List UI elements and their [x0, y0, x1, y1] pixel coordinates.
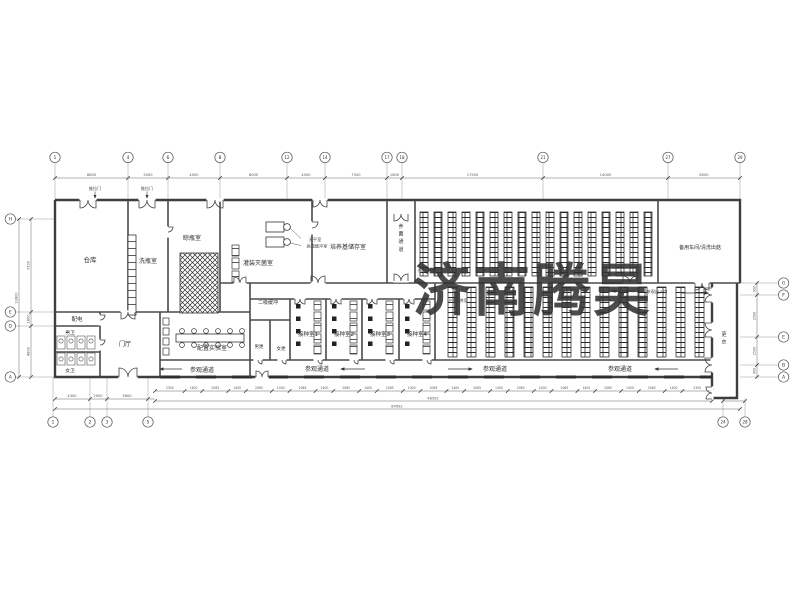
autoclave-door	[284, 239, 291, 246]
dimension-text: 2065	[255, 386, 263, 390]
lab-stool	[216, 329, 221, 334]
room-label-womens-changing: 女更	[277, 345, 286, 352]
door	[705, 322, 714, 337]
dimension-text: 900	[752, 286, 756, 292]
dimension-text: 17500	[467, 173, 479, 177]
dimension-text: 2065	[561, 386, 569, 390]
grid-bubble-label: 12	[284, 155, 290, 160]
door	[79, 198, 96, 208]
dimension-text: 1400	[451, 386, 459, 390]
room-label-inoculation-3: 接种室3	[370, 330, 391, 338]
dimension-text: 900	[752, 368, 756, 374]
floor-plan-page: 14681214171821272912352428HEDAGFEBA 8800…	[0, 0, 800, 600]
dimension-text: 4500	[301, 173, 311, 177]
lab-cabinet	[163, 348, 169, 355]
door	[366, 297, 377, 304]
lab-cabinet	[163, 328, 169, 335]
grid-bubble-label: 29	[737, 155, 743, 160]
dimension-text: 2065	[604, 386, 612, 390]
room-label-changing: 更衣	[721, 332, 726, 346]
room-label-mens-wc: 男卫	[65, 330, 75, 336]
clean-bench	[368, 317, 373, 322]
equipment-layer	[57, 222, 430, 365]
leader-line	[290, 228, 301, 239]
sterilizer-rack	[232, 245, 239, 256]
culture-rack	[695, 287, 704, 357]
room-label-mens-changing: 男更	[255, 344, 264, 350]
dimension-text: 1400	[233, 386, 241, 390]
room-label-spare-workshop: 备用车间/清洗出菇	[679, 244, 721, 251]
dimension-text: 2065	[648, 386, 656, 390]
dimension-text: 14000	[600, 173, 612, 177]
grid-bubble-label: 4	[127, 155, 130, 161]
grid-bubble-label: G	[782, 281, 786, 287]
annotation-balance-room: 天平室	[309, 236, 322, 243]
door	[330, 297, 341, 304]
lab-stool	[192, 329, 197, 334]
dimension-text: 2350	[166, 386, 174, 390]
clean-bench	[296, 304, 301, 309]
annotation-high-temp-buffer: 高温缓冲室	[307, 243, 328, 250]
room-label-bottle-drying: 晾瓶室	[183, 234, 201, 242]
clean-bench	[405, 304, 410, 309]
door	[422, 358, 431, 364]
dimension-text: 1400	[670, 386, 678, 390]
grid-bubble-label: 18	[399, 155, 405, 160]
lab-cabinet	[163, 318, 169, 325]
annotation-sliding-door-2: 推拉门	[141, 185, 153, 191]
door	[253, 358, 262, 364]
clean-bench	[405, 342, 410, 347]
door	[310, 221, 318, 234]
dimension-text: 2350	[693, 386, 701, 390]
lab-stool	[228, 329, 233, 334]
grid-bubble-label: D	[9, 324, 13, 330]
dimension-text: 7200	[26, 260, 30, 270]
dimension-text: 84592	[391, 404, 402, 408]
door	[385, 358, 394, 364]
door	[138, 198, 155, 208]
room-label-filling-sterilizing: 灌装灭菌室	[243, 259, 273, 267]
grid-bubble-label: E	[9, 310, 12, 316]
laminar-cabinet	[386, 312, 393, 321]
dimension-text: 1400	[189, 386, 197, 390]
door	[294, 297, 305, 304]
grid-bubble-label: 28	[742, 420, 748, 425]
dimension-text: 1800	[26, 314, 30, 324]
room-label-inoculation-4: 接种室4	[407, 330, 428, 338]
door	[166, 226, 173, 237]
dimension-text: 13800	[14, 292, 18, 304]
door	[312, 198, 327, 207]
grid-bubble-label: 5	[147, 420, 150, 426]
door	[98, 314, 105, 325]
dimension-text: 5600	[122, 394, 132, 398]
sterilizer-rack	[232, 271, 239, 282]
lab-stool	[228, 343, 233, 348]
room-label-inoculation-2: 接种室2	[334, 330, 354, 338]
annotation-sliding-door-1: 推拉门	[89, 185, 101, 191]
wc-fixture	[69, 357, 73, 361]
grid-bubble-label: 3	[106, 420, 109, 426]
sterilizer-rack	[232, 258, 239, 269]
laminar-cabinet	[314, 323, 321, 332]
dimension-text: 1400	[539, 386, 547, 390]
dimension-text: 1400	[320, 386, 328, 390]
clean-bench	[332, 317, 337, 322]
lab-stool	[192, 343, 197, 348]
dimension-text: 2065	[211, 386, 219, 390]
shelf-rack	[128, 235, 136, 315]
dimension-text: 1800	[390, 173, 400, 177]
lab-cabinet	[163, 338, 169, 345]
laminar-cabinet	[350, 323, 357, 332]
dimension-text: 2065	[299, 386, 307, 390]
door	[393, 212, 408, 221]
wc-fixture	[59, 357, 63, 361]
dimension-text: 2065	[386, 386, 394, 390]
door	[206, 198, 223, 208]
clean-bench	[296, 342, 301, 347]
dimension-text: 8000	[699, 173, 709, 177]
wc-fixture	[89, 357, 93, 361]
grid-bubble-label: 6	[167, 155, 170, 161]
door	[313, 358, 322, 364]
lab-stool	[240, 343, 245, 348]
laminar-cabinet	[350, 312, 357, 321]
laminar-cabinet	[423, 323, 430, 332]
grid-bubble-label: 27	[665, 155, 671, 160]
wc-fixture	[79, 339, 83, 343]
lab-stool	[240, 329, 245, 334]
corridor-label-visit-3: 参观通道	[483, 365, 507, 373]
room-label-inoculation-1: 接种室1	[298, 330, 318, 338]
room-label-prep-lab: 配置实验室	[197, 344, 227, 352]
room-label-secondary-buffer: 二级缓冲	[258, 299, 278, 306]
grid-bubble-label: 24	[720, 420, 726, 425]
dimension-text: 1400	[277, 386, 285, 390]
laminar-cabinet	[350, 301, 357, 310]
room-label-power: 配电	[71, 315, 83, 323]
laminar-cabinet	[314, 345, 321, 354]
autoclave	[266, 222, 284, 232]
laminar-cabinet	[314, 301, 321, 310]
dimension-text: 2500	[752, 312, 756, 320]
room-label-warehouse: 仓库	[84, 255, 98, 264]
dimension-text: 8800	[87, 173, 97, 177]
clean-bench	[296, 317, 301, 322]
grid-bubble-label: F	[782, 293, 785, 299]
culture-rack	[657, 287, 666, 357]
dimension-text: 2000	[93, 394, 103, 398]
grid-bubble-label: B	[782, 363, 785, 369]
dimension-text: 4800	[26, 346, 30, 356]
dimension-text: 5000	[143, 173, 153, 177]
door	[706, 386, 714, 399]
clean-bench	[332, 342, 337, 347]
lab-stool	[180, 329, 185, 334]
room-label-foyer: 门厅	[119, 340, 131, 348]
room-label-incubation-corridor: 养菌通道	[398, 223, 403, 253]
autoclave	[266, 237, 284, 247]
door	[255, 371, 268, 379]
clean-bench	[405, 317, 410, 322]
door	[118, 368, 137, 379]
dimension-text: 1400	[626, 386, 634, 390]
grid-bubble-label: 1	[54, 155, 57, 161]
autoclave-door	[284, 224, 291, 231]
corridor-label-visit-4: 参观通道	[608, 365, 632, 373]
wc-fixture	[89, 339, 93, 343]
room-label-medium-storage: 培养基储存室	[330, 243, 366, 251]
dimension-text: 2065	[473, 386, 481, 390]
grid-bubble-label: E	[782, 335, 785, 341]
dimension-text: 4000	[189, 173, 199, 177]
grid-bubble-label: 21	[540, 155, 546, 160]
bottle-stack-hatch	[180, 253, 218, 313]
floor-plan-canvas: 14681214171821272912352428HEDAGFEBA 8800…	[0, 0, 800, 600]
dimension-text: 2065	[517, 386, 525, 390]
clean-bench	[332, 304, 337, 309]
grid-bubble-label: 14	[322, 155, 328, 160]
dimension-text: 2065	[342, 386, 350, 390]
lab-bench	[176, 334, 244, 342]
corridor-label-visit-1: 参观通道	[190, 366, 214, 374]
room-label-womens-wc: 女卫	[65, 367, 75, 374]
dimension-text: 1400	[408, 386, 416, 390]
laminar-cabinet	[314, 312, 321, 321]
grid-bubble-label: 17	[384, 155, 390, 160]
dimension-text: 1400	[364, 386, 372, 390]
laminar-cabinet	[386, 301, 393, 310]
dimension-text: 4300	[67, 394, 77, 398]
laminar-cabinet	[350, 345, 357, 354]
lab-stool	[180, 343, 185, 348]
watermark-text: 济南腾昊	[413, 258, 653, 324]
laminar-cabinet	[423, 345, 430, 354]
door	[393, 274, 408, 283]
dimension-text: 2500	[752, 347, 756, 355]
dimension-text: 2065	[430, 386, 438, 390]
grid-bubble-label: 1	[52, 420, 55, 426]
grid-bubble-label: H	[9, 217, 12, 223]
clean-bench	[368, 304, 373, 309]
dimension-text: 48592	[427, 396, 438, 400]
dimension-text: 7500	[351, 173, 361, 177]
wc-fixture	[79, 357, 83, 361]
lab-stool	[204, 329, 209, 334]
dimension-text: 8000	[249, 173, 259, 177]
wc-fixture	[59, 339, 63, 343]
clean-bench	[368, 342, 373, 347]
dimension-text: 1400	[582, 386, 590, 390]
leader-line	[290, 243, 301, 246]
dimension-text: 1400	[495, 386, 503, 390]
grid-bubble-label: 2	[89, 420, 92, 426]
laminar-cabinet	[386, 345, 393, 354]
wc-fixture	[69, 339, 73, 343]
corridor-label-visit-2: 参观通道	[305, 365, 329, 373]
door	[349, 358, 358, 364]
culture-rack	[676, 287, 685, 357]
door	[277, 358, 286, 364]
room-label-bottle-washing: 洗瓶室	[139, 257, 157, 265]
grid-bubble-label: 8	[219, 155, 222, 161]
laminar-cabinet	[386, 323, 393, 332]
door	[98, 339, 105, 350]
